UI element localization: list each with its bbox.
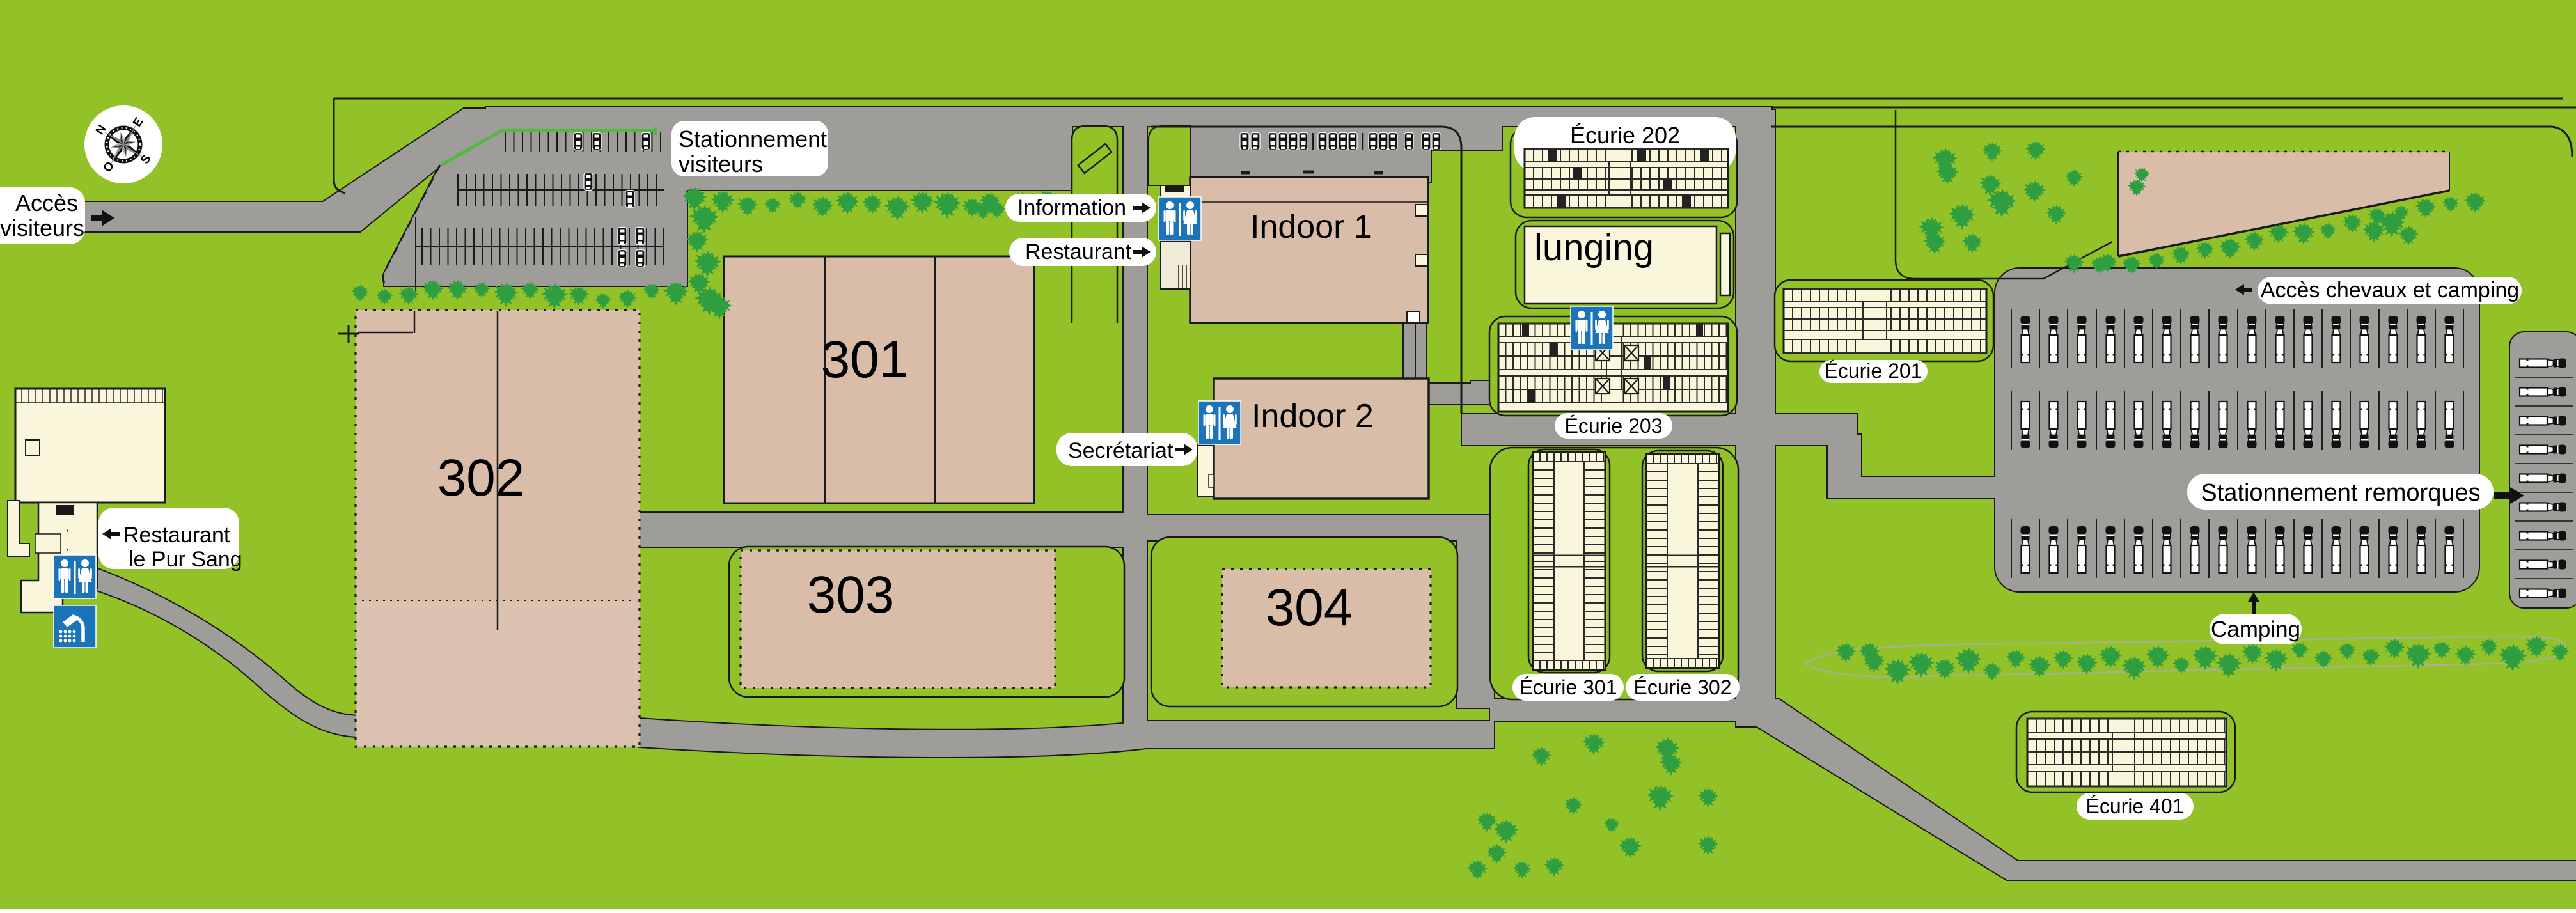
svg-text:Indoor 1: Indoor 1 [1250, 208, 1372, 246]
svg-text:Écurie 302: Écurie 302 [1634, 676, 1732, 699]
svg-text:Écurie 201: Écurie 201 [1825, 359, 1922, 382]
svg-text:Stationnement: Stationnement [679, 126, 827, 152]
svg-text:visiteurs: visiteurs [679, 151, 763, 177]
svg-text:Restaurant: Restaurant [123, 523, 230, 547]
svg-text:Écurie 202: Écurie 202 [1570, 122, 1680, 148]
svg-text:Stationnement remorques: Stationnement remorques [2201, 480, 2480, 506]
svg-text:304: 304 [1266, 579, 1353, 637]
svg-text:lunging: lunging [1534, 227, 1654, 269]
svg-text:Écurie 203: Écurie 203 [1565, 414, 1663, 437]
svg-text:Secrétariat: Secrétariat [1068, 439, 1174, 463]
svg-text:Information: Information [1017, 196, 1126, 220]
svg-text:Écurie 401: Écurie 401 [2086, 795, 2184, 818]
svg-text:303: 303 [807, 566, 895, 624]
svg-text:le Pur Sang: le Pur Sang [129, 547, 242, 572]
svg-text:Indoor 2: Indoor 2 [1252, 398, 1374, 435]
svg-text:301: 301 [821, 331, 909, 389]
svg-text:visiteurs: visiteurs [0, 215, 84, 241]
svg-text:Écurie 301: Écurie 301 [1520, 676, 1617, 699]
svg-text:Accès chevaux et camping: Accès chevaux et camping [2261, 278, 2519, 302]
svg-text:Restaurant: Restaurant [1025, 240, 1132, 264]
svg-text:302: 302 [437, 449, 525, 507]
svg-text:Camping: Camping [2211, 617, 2300, 642]
svg-text:Accès: Accès [15, 190, 78, 216]
